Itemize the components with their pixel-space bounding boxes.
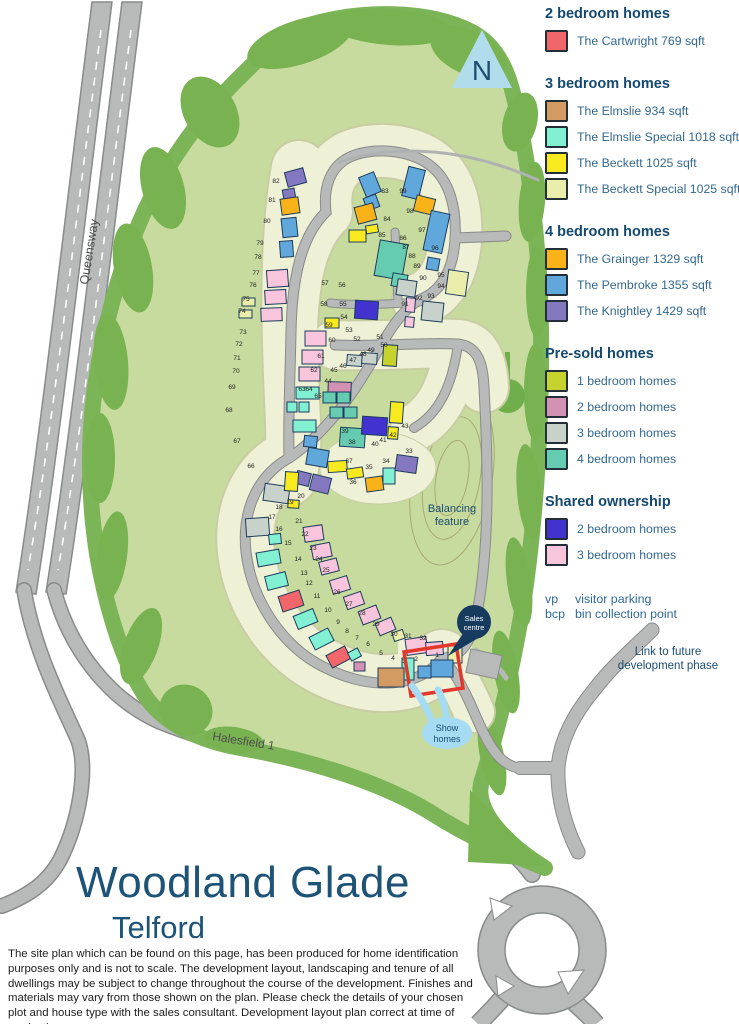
legend-section: Pre-sold homes1 bedroom homes2 bedroom h… (545, 346, 739, 472)
legend-note: bcpbin collection point (545, 607, 739, 622)
legend-item-label: The Knightley 1429 sqft (577, 304, 706, 318)
north-label: N (472, 55, 492, 86)
house-footprint (349, 230, 366, 242)
plot-number: 42 (389, 432, 397, 439)
legend-swatch (545, 422, 568, 444)
plot-number: 40 (371, 441, 379, 448)
plot-number: 14 (294, 556, 302, 563)
plot-number: 51 (376, 334, 384, 341)
plot-number: 34 (382, 458, 390, 465)
plot-number: 19 (286, 499, 294, 506)
plot-number: 39 (341, 428, 349, 435)
legend-item: The Cartwright 769 sqft (545, 28, 739, 54)
plot-number: 6 (366, 641, 370, 648)
plot-number: 50 (380, 342, 388, 349)
plot-number: 66 (247, 463, 255, 470)
plot-number: 59 (325, 322, 333, 329)
house-footprint (280, 197, 300, 215)
plot-number: 88 (408, 253, 416, 260)
plot-number: 71 (233, 355, 241, 362)
house-footprint (323, 392, 336, 403)
house-footprint (265, 289, 287, 304)
legend-note-abbr: vp (545, 592, 575, 607)
plot-number: 79 (256, 240, 264, 247)
house-footprint (383, 468, 395, 484)
house-footprint (287, 402, 297, 412)
legend-swatch (545, 396, 568, 418)
legend-item: 2 bedroom homes (545, 516, 739, 542)
legend-item-label: The Beckett 1025 sqft (577, 156, 697, 170)
plot-number: 55 (339, 301, 347, 308)
plot-number: 98 (406, 208, 414, 215)
house-footprint (245, 517, 269, 537)
legend-heading: 2 bedroom homes (545, 6, 739, 22)
plot-number: 92 (415, 295, 423, 302)
plot-number: 52 (353, 336, 361, 343)
plot-number: 26 (333, 589, 341, 596)
development-town: Telford (112, 910, 410, 946)
legend-item: The Pembroke 1355 sqft (545, 272, 739, 298)
plot-number: 27 (345, 601, 353, 608)
future-link-label: Link to future development phase (597, 645, 739, 673)
plot-number: 62 (310, 367, 318, 374)
legend-swatch (545, 448, 568, 470)
plot-number: 29 (372, 621, 380, 628)
plot-number: 58 (320, 301, 328, 308)
plot-number: 11 (314, 593, 321, 600)
legend-item-label: 2 bedroom homes (577, 522, 676, 536)
legend-item-label: 4 bedroom homes (577, 452, 676, 466)
plot-number: 61 (317, 353, 325, 360)
plot-number: 96 (431, 245, 439, 252)
plot-number: 2 (414, 656, 418, 663)
plot-number: 80 (263, 218, 271, 225)
house-footprint (344, 407, 357, 418)
plot-number: 43 (401, 423, 409, 430)
legend-swatch (545, 518, 568, 540)
house-footprint (445, 270, 468, 297)
plot-number: 24 (315, 556, 323, 563)
house-footprint (299, 402, 309, 412)
plot-number: 82 (272, 178, 280, 185)
legend-swatch (545, 30, 568, 52)
legend-swatch (545, 544, 568, 566)
plot-number: 57 (321, 280, 329, 287)
plot-number: 91 (401, 301, 409, 308)
legend: 2 bedroom homesThe Cartwright 769 sqft3 … (545, 0, 739, 622)
plot-number: 45 (330, 367, 338, 374)
house-footprint (337, 392, 350, 403)
legend-note: vpvisitor parking (545, 592, 739, 607)
plot-number: 36 (349, 479, 357, 486)
plot-number: 9 (336, 619, 340, 626)
future-link-line2: development phase (597, 659, 739, 673)
legend-item: The Beckett Special 1025 sqft (545, 176, 739, 202)
house-footprint (378, 668, 404, 687)
plot-number: 60 (328, 337, 336, 344)
plot-number: 33 (405, 448, 413, 455)
plot-number: 21 (295, 518, 303, 525)
legend-item: 4 bedroom homes (545, 446, 739, 472)
legend-item-label: 1 bedroom homes (577, 374, 676, 388)
house-footprint (305, 331, 326, 346)
legend-item: The Knightley 1429 sqft (545, 298, 739, 324)
sales-centre-label-1: Sales (465, 614, 484, 623)
house-footprint (306, 447, 330, 467)
legend-item-label: 3 bedroom homes (577, 426, 676, 440)
plot-number: 76 (249, 282, 257, 289)
balancing-feature-label-2: feature (435, 516, 469, 528)
legend-note-abbr: bcp (545, 607, 575, 622)
house-footprint (361, 416, 387, 436)
house-footprint (354, 662, 365, 671)
legend-item-label: 2 bedroom homes (577, 400, 676, 414)
legend-item: The Grainger 1329 sqft (545, 246, 739, 272)
house-footprint (431, 660, 453, 677)
plot-number: 75 (242, 296, 250, 303)
legend-item-label: 3 bedroom homes (577, 548, 676, 562)
plot-number: 31 (404, 633, 412, 640)
legend-item-label: The Cartwright 769 sqft (577, 34, 705, 48)
plot-number: 99 (399, 188, 407, 195)
legend-note-label: visitor parking (575, 592, 651, 607)
legend-section: 2 bedroom homesThe Cartwright 769 sqft (545, 6, 739, 54)
plot-number: 73 (239, 329, 247, 336)
legend-item-label: The Elmslie Special 1018 sqft (577, 130, 739, 144)
legend-swatch (545, 152, 568, 174)
house-footprint (354, 300, 378, 320)
plot-number: 84 (383, 216, 391, 223)
plot-number: 53 (345, 327, 353, 334)
plot-number: 64 (305, 386, 313, 393)
plot-number: 48 (359, 351, 367, 358)
house-footprint (261, 308, 282, 322)
plot-number: 41 (379, 437, 387, 444)
plot-number: 72 (235, 341, 243, 348)
disclaimer-text: The site plan which can be found on this… (8, 947, 474, 1024)
future-link-line1: Link to future (597, 645, 739, 659)
legend-heading: Pre-sold homes (545, 346, 739, 362)
legend-item: 3 bedroom homes (545, 542, 739, 568)
plot-number: 90 (419, 275, 427, 282)
development-title: Woodland Glade (76, 858, 410, 908)
plot-number: 65 (314, 393, 322, 400)
roundabout (478, 886, 606, 1024)
plot-number: 47 (349, 357, 357, 364)
plot-number: 49 (367, 347, 375, 354)
plot-number: 81 (268, 197, 276, 204)
plot-number: 30 (390, 631, 398, 638)
legend-item: The Elmslie Special 1018 sqft (545, 124, 739, 150)
plot-number: 18 (275, 504, 283, 511)
legend-item-label: The Beckett Special 1025 sqft (577, 182, 739, 196)
legend-item-label: The Grainger 1329 sqft (577, 252, 703, 266)
plot-number: 97 (418, 227, 426, 234)
legend-item: The Beckett 1025 sqft (545, 150, 739, 176)
plot-number: 7 (355, 635, 359, 642)
plot-number: 94 (437, 283, 445, 290)
show-homes-label-1: Show (436, 723, 459, 733)
legend-swatch (545, 248, 568, 270)
plot-number: 68 (225, 407, 233, 414)
plot-number: 1 (435, 652, 439, 659)
plot-number: 89 (413, 263, 421, 270)
legend-swatch (545, 300, 568, 322)
legend-note-label: bin collection point (575, 607, 677, 622)
house-footprint (266, 269, 288, 287)
legend-section: 4 bedroom homesThe Grainger 1329 sqftThe… (545, 224, 739, 324)
house-footprint (330, 407, 343, 418)
house-footprint (303, 435, 317, 447)
legend-item: 2 bedroom homes (545, 394, 739, 420)
legend-swatch (545, 274, 568, 296)
plot-number: 28 (358, 610, 366, 617)
plot-number: 56 (338, 282, 346, 289)
house-footprint (395, 455, 418, 474)
plot-number: 69 (228, 384, 236, 391)
balancing-feature-label-1: Balancing (428, 503, 476, 515)
legend-heading: Shared ownership (545, 494, 739, 510)
plot-number: 86 (399, 235, 407, 242)
plot-number: 32 (419, 635, 427, 642)
plot-number: 4 (391, 655, 395, 662)
legend-item: 1 bedroom homes (545, 368, 739, 394)
legend-swatch (545, 178, 568, 200)
house-footprint (365, 476, 384, 492)
legend-section: 3 bedroom homesThe Elmslie 934 sqftThe E… (545, 76, 739, 202)
legend-item-label: The Elmslie 934 sqft (577, 104, 688, 118)
house-footprint (279, 241, 293, 258)
legend-heading: 3 bedroom homes (545, 76, 739, 92)
plot-number: 35 (365, 464, 373, 471)
house-footprint (346, 467, 363, 479)
house-footprint (293, 420, 316, 432)
legend-item: 3 bedroom homes (545, 420, 739, 446)
legend-section: Shared ownership2 bedroom homes3 bedroom… (545, 494, 739, 568)
plot-number: 83 (381, 188, 389, 195)
plot-number: 17 (268, 514, 276, 521)
plot-number: 10 (324, 607, 332, 614)
plot-number: 77 (252, 270, 260, 277)
legend-item: The Elmslie 934 sqft (545, 98, 739, 124)
house-footprint (396, 279, 417, 297)
legend-notes: vpvisitor parkingbcpbin collection point (545, 592, 739, 622)
house-footprint (284, 472, 298, 492)
house-footprint (426, 257, 440, 271)
tail-trees (468, 790, 545, 866)
plot-number: 87 (402, 244, 410, 251)
legend-heading: 4 bedroom homes (545, 224, 739, 240)
plot-number: 85 (378, 232, 386, 239)
plot-number: 78 (254, 254, 262, 261)
house-footprint (389, 402, 403, 424)
plot-number: 20 (297, 493, 305, 500)
plot-number: 23 (309, 545, 317, 552)
plot-number: 93 (427, 293, 435, 300)
plot-number: 67 (233, 438, 241, 445)
legend-item-label: The Pembroke 1355 sqft (577, 278, 712, 292)
plot-number: 8 (345, 628, 349, 635)
legend-swatch (545, 100, 568, 122)
house-footprint (365, 224, 378, 234)
plot-number: 38 (348, 439, 356, 446)
show-homes-label-2: homes (433, 734, 461, 744)
plot-number: 37 (345, 458, 353, 465)
plot-number: 16 (275, 526, 283, 533)
east-stub-road (455, 236, 506, 238)
house-footprint (421, 301, 444, 322)
plot-number: 25 (322, 567, 330, 574)
plot-number: 15 (284, 540, 292, 547)
house-footprint (418, 666, 431, 678)
plot-number: 95 (437, 272, 445, 279)
legend-swatch (545, 370, 568, 392)
sales-centre-label-2: centre (464, 623, 485, 632)
plot-number: 46 (339, 363, 347, 370)
plot-number: 74 (238, 308, 246, 315)
legend-swatch (545, 126, 568, 148)
plot-number: 5 (379, 650, 383, 657)
plot-number: 70 (232, 368, 240, 375)
site-plan-page: 1234567891011121314151617181920212223242… (0, 0, 739, 1024)
house-footprint (269, 533, 282, 544)
title-block: Woodland Glade Telford (76, 858, 410, 946)
plot-number: 12 (305, 580, 313, 587)
plot-number: 44 (324, 378, 332, 385)
plot-number: 22 (301, 531, 309, 538)
plot-number: 54 (340, 314, 348, 321)
house-footprint (281, 217, 298, 237)
plot-number: 13 (300, 570, 308, 577)
house-footprint (405, 317, 415, 328)
